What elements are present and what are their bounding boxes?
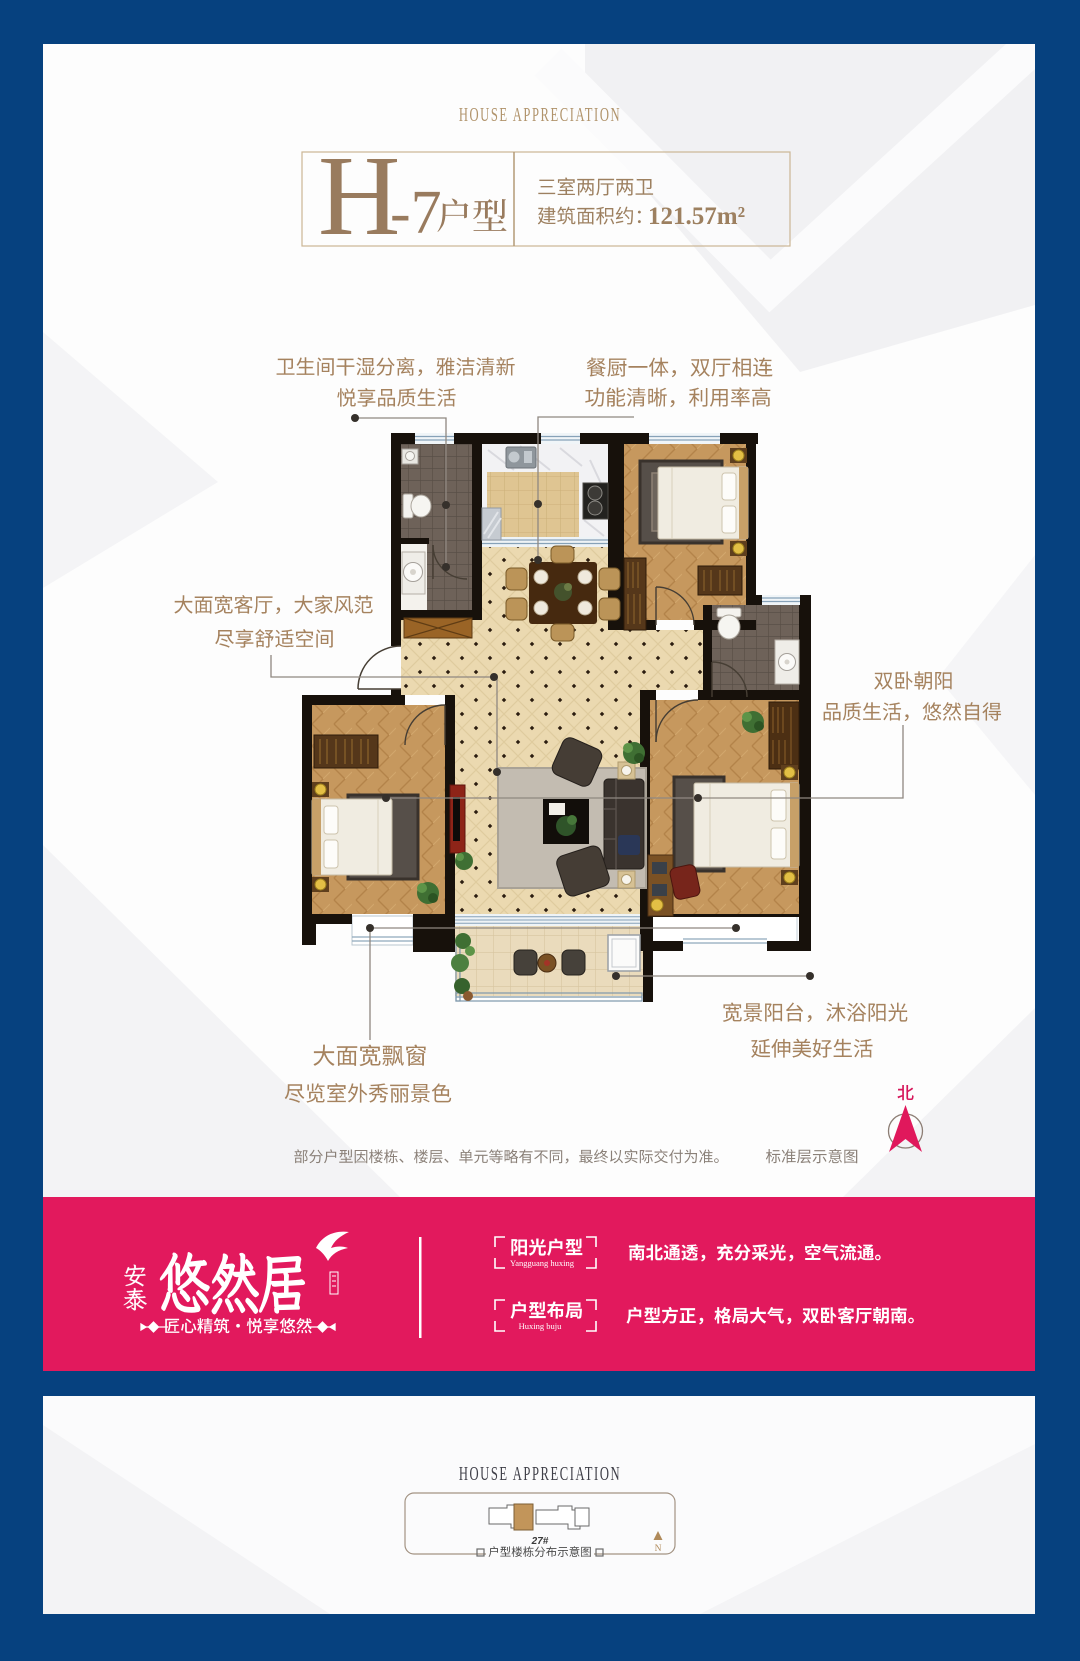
svg-text:H: H: [318, 132, 400, 259]
svg-text:HOUSE APPRECIATION: HOUSE APPRECIATION: [459, 1462, 621, 1485]
svg-text:121.57m²: 121.57m²: [648, 203, 745, 230]
svg-text:-7: -7: [390, 179, 442, 247]
svg-text:Yangguang huxing: Yangguang huxing: [510, 1258, 575, 1268]
svg-text:27#: 27#: [531, 1536, 549, 1547]
svg-text:HOUSE APPRECIATION: HOUSE APPRECIATION: [459, 103, 621, 126]
svg-text:N: N: [655, 1544, 662, 1554]
svg-text:Huxing buju: Huxing buju: [519, 1321, 562, 1331]
